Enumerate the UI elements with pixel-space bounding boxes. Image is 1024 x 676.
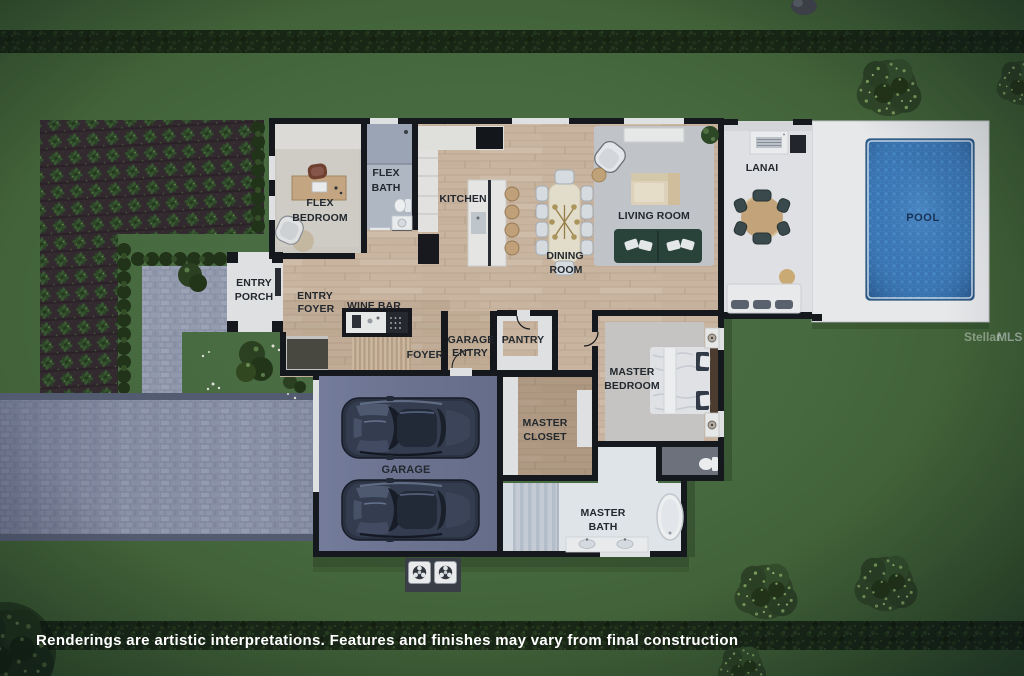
svg-text:Renderings are artistic interp: Renderings are artistic interpretations.…	[36, 632, 738, 649]
svg-text:MLS: MLS	[997, 330, 1022, 344]
svg-text:Stellar: Stellar	[964, 330, 1001, 344]
